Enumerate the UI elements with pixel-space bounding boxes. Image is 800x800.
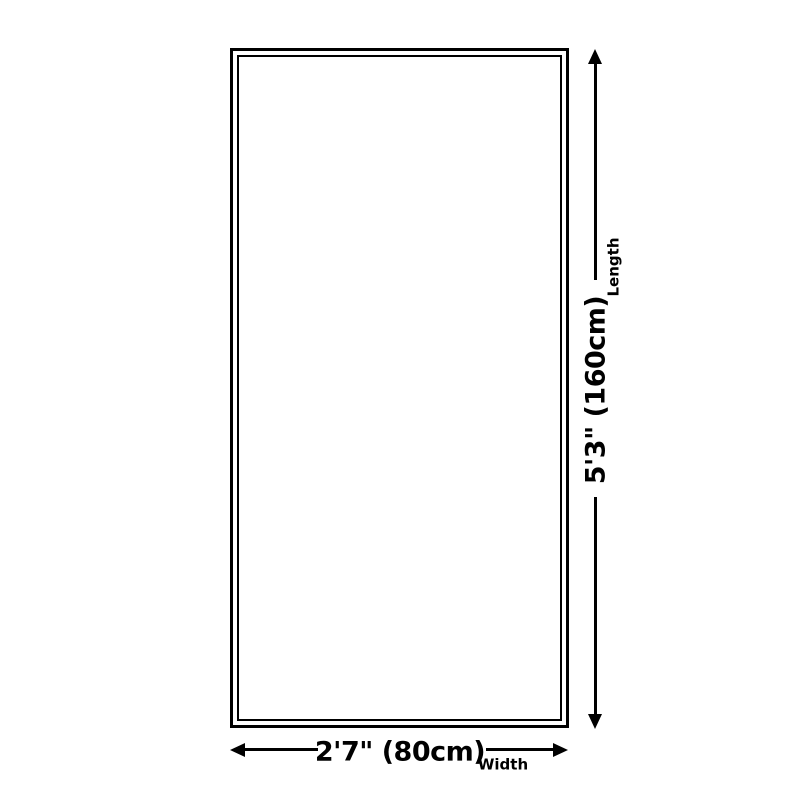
width-label: Width <box>478 758 528 773</box>
arrow-right-icon <box>553 743 568 757</box>
width-value: 2'7" (80cm) <box>315 739 485 766</box>
width-dimension-line-right <box>486 748 554 751</box>
dimension-diagram: 5'3" (160cm) Length 2'7" (80cm) Width <box>0 0 800 800</box>
length-value: 5'3" (160cm) <box>583 296 610 484</box>
arrow-left-icon <box>230 743 245 757</box>
length-label: Length <box>607 238 622 297</box>
length-dimension-line-bottom <box>594 497 597 715</box>
product-outline-outer <box>230 48 569 728</box>
width-dimension-line-left <box>244 748 318 751</box>
length-dimension-line-top <box>594 62 597 280</box>
product-outline-inner <box>237 55 562 721</box>
arrow-down-icon <box>588 714 602 729</box>
